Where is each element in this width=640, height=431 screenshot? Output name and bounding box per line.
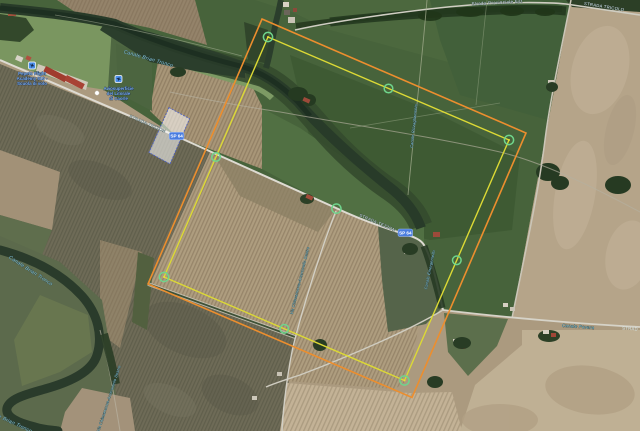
svg-text:SP 64: SP 64 <box>399 230 412 235</box>
svg-text:di Caorle: di Caorle <box>109 96 128 101</box>
svg-text:SP 64: SP 64 <box>170 134 183 139</box>
svg-text:Scuola di volo: Scuola di volo <box>17 81 47 86</box>
